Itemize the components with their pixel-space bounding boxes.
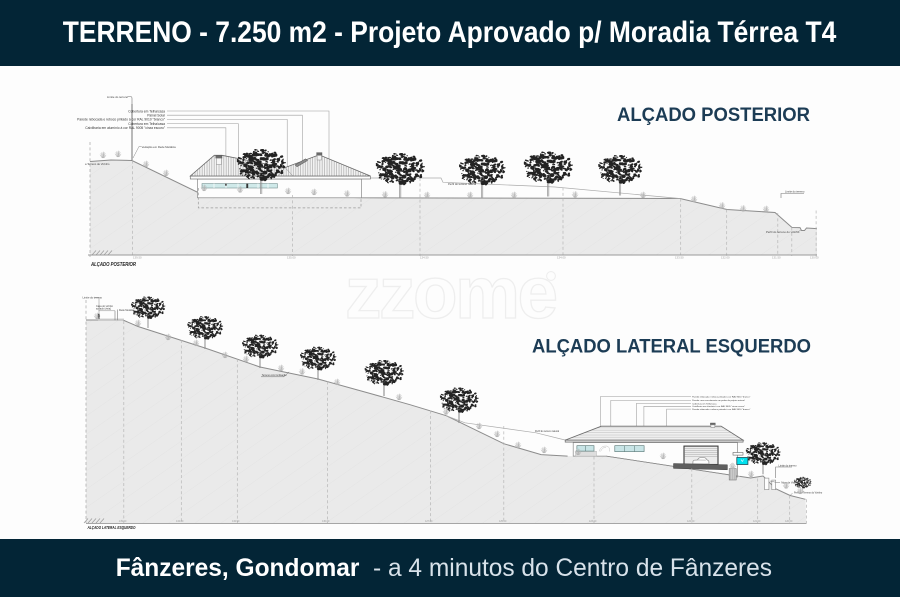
- svg-text:Perfil do terreno natural: Perfil do terreno natural: [448, 182, 476, 186]
- svg-text:a Terreno de Vizinho: a Terreno de Vizinho: [85, 162, 110, 166]
- svg-text:ao lado (vista): ao lado (vista): [96, 308, 111, 311]
- svg-text:130.00: 130.00: [322, 520, 330, 523]
- svg-text:Parede rebocada e reboco pinta: Parede rebocada e reboco pintado à cor R…: [692, 408, 750, 411]
- svg-text:zzome: zzome: [345, 253, 557, 334]
- svg-text:Limite do terreno: Limite do terreno: [785, 190, 805, 194]
- svg-text:134.00: 134.00: [176, 520, 184, 523]
- svg-text:120.00: 120.00: [785, 520, 793, 523]
- svg-text:Parede com revestimento em ped: Parede com revestimento em pedra do próp…: [692, 399, 745, 402]
- svg-text:139.00: 139.00: [119, 520, 127, 523]
- svg-text:125.00: 125.00: [499, 520, 507, 523]
- svg-text:130.00: 130.00: [810, 256, 819, 260]
- svg-text:Terreno com Inclinação: Terreno com Inclinação: [262, 374, 287, 377]
- svg-text:135.00: 135.00: [287, 256, 296, 260]
- svg-text:ALÇADO POSTERIOR: ALÇADO POSTERIOR: [617, 104, 810, 126]
- svg-text:Perfil do terreno natural: Perfil do terreno natural: [535, 430, 559, 433]
- svg-text:ALÇADO LATERAL ESQUERDO: ALÇADO LATERAL ESQUERDO: [532, 336, 811, 358]
- svg-text:123.00: 123.00: [589, 520, 597, 523]
- svg-text:134.00: 134.00: [557, 256, 566, 260]
- svg-text:Caixilharia em alumínio à cor: Caixilharia em alumínio à cor RAL 9005 "…: [692, 405, 745, 408]
- svg-text:132.00: 132.00: [721, 256, 730, 260]
- svg-text:Limite do terreno: Limite do terreno: [83, 296, 103, 300]
- svg-text:Cobertura em Telha/casa: Cobertura em Telha/casa: [692, 402, 717, 405]
- svg-text:139.50: 139.50: [133, 256, 142, 260]
- svg-text:133.50: 133.50: [675, 256, 684, 260]
- svg-text:Vedação em Rede Metálica: Vedação em Rede Metálica: [142, 145, 177, 149]
- svg-text:ALÇADO LATERAL ESQUERDO: ALÇADO LATERAL ESQUERDO: [87, 525, 136, 530]
- svg-text:121.00: 121.00: [753, 520, 761, 523]
- svg-text:132.50: 132.50: [232, 520, 240, 523]
- svg-text:ALÇADO POSTERIOR: ALÇADO POSTERIOR: [90, 262, 136, 268]
- svg-text:Parede rebocada e reboco pinta: Parede rebocada e reboco pintado à cor R…: [692, 395, 750, 398]
- svg-text:131.50: 131.50: [772, 256, 781, 260]
- svg-text:122.00: 122.00: [687, 520, 695, 523]
- svg-text:Perfil do terreno do vizinho: Perfil do terreno do vizinho: [766, 230, 800, 234]
- svg-text:Limite do terreno: Limite do terreno: [107, 95, 128, 99]
- svg-text:127.00: 127.00: [425, 520, 433, 523]
- svg-text:Caixilharia em alumínio à cor: Caixilharia em alumínio à cor RAL 9005 "…: [85, 126, 166, 130]
- svg-text:Limite do terreno: Limite do terreno: [779, 465, 798, 468]
